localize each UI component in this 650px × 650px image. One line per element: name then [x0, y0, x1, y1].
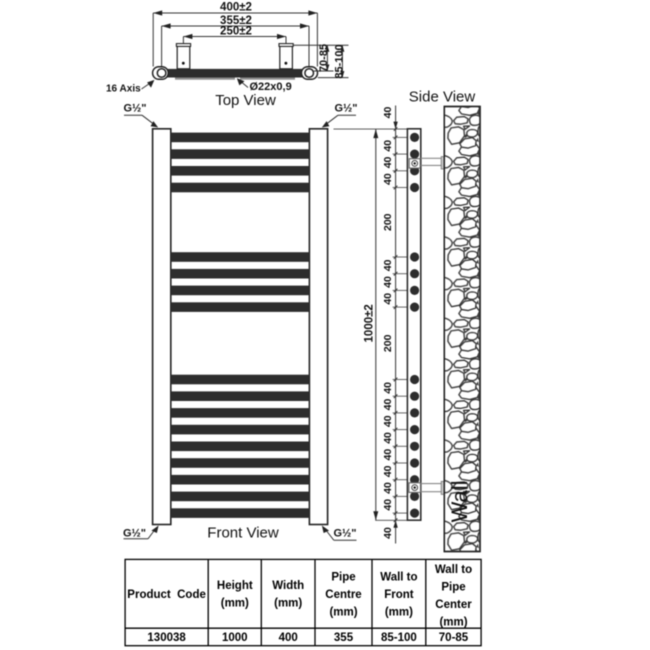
- svg-text:40: 40: [382, 432, 394, 444]
- svg-text:40: 40: [382, 399, 394, 411]
- svg-text:40: 40: [382, 259, 394, 271]
- svg-text:(mm): (mm): [439, 616, 467, 628]
- svg-text:Pipe: Pipe: [441, 581, 465, 593]
- svg-text:G½": G½": [123, 528, 146, 540]
- svg-text:40: 40: [382, 140, 394, 152]
- svg-text:200: 200: [382, 213, 394, 231]
- svg-text:40: 40: [382, 156, 394, 168]
- svg-text:1000: 1000: [222, 632, 248, 644]
- svg-text:40: 40: [382, 382, 394, 394]
- svg-text:Width: Width: [272, 580, 304, 592]
- svg-text:Centre: Centre: [325, 589, 361, 601]
- svg-text:Top View: Top View: [215, 92, 276, 109]
- svg-text:Center: Center: [435, 599, 472, 611]
- svg-text:355: 355: [334, 632, 354, 644]
- svg-text:130038: 130038: [147, 632, 186, 644]
- svg-text:Front: Front: [384, 589, 414, 601]
- svg-text:Height: Height: [217, 580, 253, 592]
- svg-text:G½": G½": [335, 103, 358, 115]
- svg-text:40: 40: [382, 276, 394, 288]
- svg-text:Side View: Side View: [409, 89, 476, 106]
- svg-text:G½": G½": [124, 103, 147, 115]
- svg-text:70-85: 70-85: [439, 632, 469, 644]
- svg-text:250±2: 250±2: [220, 25, 252, 37]
- svg-text:85-100: 85-100: [334, 44, 346, 78]
- svg-text:400±2: 400±2: [220, 2, 252, 14]
- svg-text:40: 40: [382, 293, 394, 305]
- svg-text:(mm): (mm): [221, 598, 249, 610]
- svg-text:1000±2: 1000±2: [363, 304, 375, 342]
- svg-text:Front View: Front View: [207, 525, 279, 542]
- svg-text:40: 40: [382, 107, 394, 119]
- svg-text:40: 40: [382, 499, 394, 511]
- svg-text:40: 40: [382, 527, 394, 539]
- svg-text:Pipe: Pipe: [331, 572, 355, 584]
- svg-text:Wall: Wall: [447, 480, 472, 522]
- svg-text:G½": G½": [334, 528, 357, 540]
- svg-text:(mm): (mm): [385, 607, 413, 619]
- svg-text:40: 40: [382, 465, 394, 477]
- svg-text:85-100: 85-100: [381, 632, 417, 644]
- svg-text:Wall to: Wall to: [435, 564, 472, 576]
- svg-text:40: 40: [382, 415, 394, 427]
- svg-text:(mm): (mm): [329, 607, 357, 619]
- svg-text:40: 40: [382, 173, 394, 185]
- svg-text:Wall to: Wall to: [380, 572, 417, 584]
- svg-text:40: 40: [382, 449, 394, 461]
- svg-text:Product Code: Product Code: [127, 589, 206, 601]
- svg-text:200: 200: [382, 334, 394, 352]
- svg-text:(mm): (mm): [274, 598, 302, 610]
- svg-text:40: 40: [382, 482, 394, 494]
- svg-text:400: 400: [279, 632, 298, 644]
- svg-text:70-85: 70-85: [318, 44, 330, 72]
- svg-text:16 Axis: 16 Axis: [106, 84, 141, 95]
